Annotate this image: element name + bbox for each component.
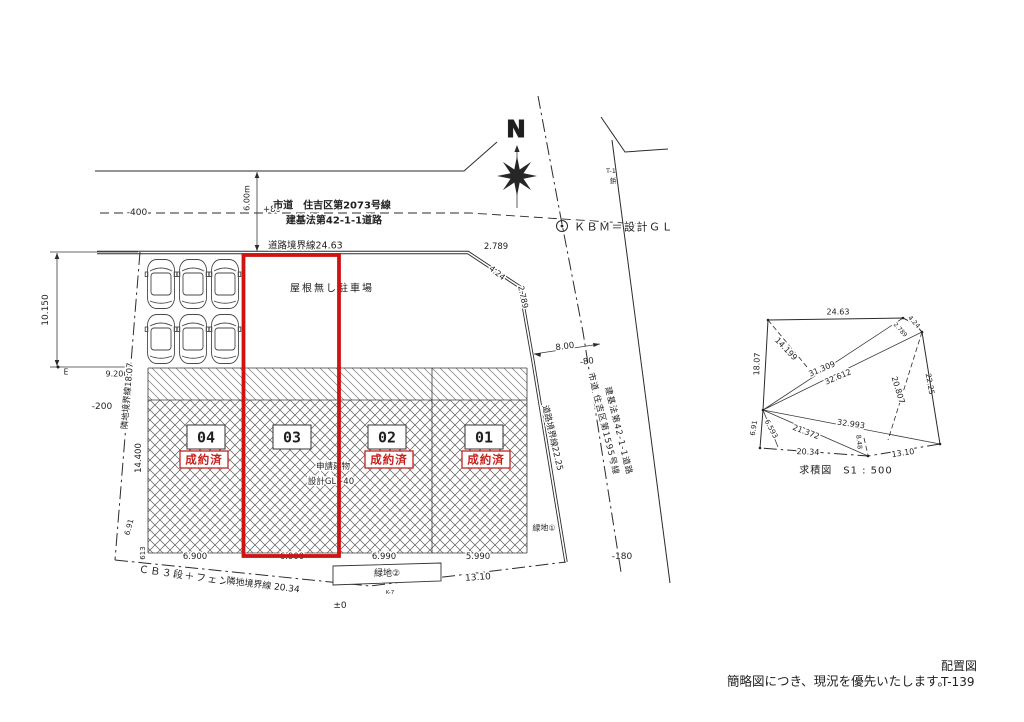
drawing-canvas: N ＫＢＭ＝設計ＧＬ T-1 鋲 屋根無し駐車場 [0, 0, 1024, 722]
west-edge-dim: 6.91 [122, 518, 135, 537]
survey-d5-dim: 21.372 [791, 423, 820, 441]
survey-d4-dim: 32.993 [837, 418, 866, 431]
top-road-name1: 市道 住吉区第2073号線 [273, 199, 391, 212]
lot-03-note-line2: 設計GL+40 [308, 476, 354, 487]
bend-dim-h: 2.789 [484, 242, 508, 252]
car-icon [209, 260, 241, 309]
car-icon [145, 260, 177, 309]
car-icon [177, 260, 209, 309]
south-dim-label: 13.10 [465, 572, 492, 584]
k7-label: K-7 [386, 590, 395, 596]
survey-h1-dim: 14.199 [773, 336, 799, 362]
north-letter: N [506, 117, 525, 143]
survey-bottom-right-dim: 13.10 [891, 447, 915, 459]
top-boundary-label: 道路境界線24.63 [268, 240, 343, 252]
lot-01-width: 5.990 [466, 552, 490, 562]
top-road-name2: 建基法第42-1-1道路 [285, 214, 383, 227]
survey-jog1-dim: 2.789 [892, 321, 909, 339]
west-elev-label: -200 [92, 402, 113, 412]
lot-02-status: 成約済 [370, 453, 408, 467]
top-elev-left: -400 [127, 208, 148, 218]
survey-vertices [759, 317, 942, 458]
lot-04-status: 成約済 [185, 453, 223, 467]
survey-top-dim: 24.63 [827, 308, 850, 317]
corner-building-edge [601, 117, 668, 152]
bench-mark-label: E [64, 368, 69, 377]
survey-bottom-left-dim: 20.34 [796, 447, 819, 457]
sheet-number: T-139 [940, 675, 974, 689]
parking-depth-dim: 10.150 [41, 294, 51, 326]
car-icon [177, 315, 209, 364]
car-icon [209, 315, 241, 364]
east-elev-lower: -180 [612, 552, 633, 562]
title-block: 簡略図につき、現況を優先いたします。 配置図 T-139 [727, 659, 977, 689]
corner-offset-dim: 613 [139, 546, 147, 559]
car-icon [145, 315, 177, 364]
green2-label: 緑地② [374, 567, 400, 579]
survey-outline-solid [760, 318, 940, 448]
lot-03-number: 03 [283, 429, 301, 447]
lot-depth-dim: 14.400 [134, 443, 144, 473]
compass: N [497, 117, 537, 208]
site-plan-page: N ＫＢＭ＝設計ＧＬ T-1 鋲 屋根無し駐車場 [0, 0, 1024, 722]
survey-d6-dim: 6.593 [763, 418, 779, 439]
survey-right-dim: 22.25 [924, 373, 937, 396]
parking-label: 屋根無し駐車場 [290, 282, 374, 295]
survey-diagonals [763, 318, 940, 456]
lot-02-number: 02 [378, 429, 396, 447]
survey-title: 求積図 S1 : 500 [799, 464, 893, 477]
green1-label: 緑地① [532, 523, 555, 533]
bend-dim-diag: 4.24 [487, 264, 507, 282]
compass-needle-arrow [514, 145, 519, 152]
east-elev-upper: -80 [579, 356, 594, 368]
level-label: ±0 [333, 601, 347, 611]
benchmark: ＫＢＭ＝設計ＧＬ T-1 鋲 [557, 167, 675, 234]
survey-h2-dim: 8.48 [854, 434, 863, 449]
survey-left-lower-dim: 6.91 [749, 420, 760, 437]
survey-left-dim: 18.07 [752, 352, 762, 375]
pin-label: 鋲 [610, 176, 617, 185]
road-upper-edge [95, 142, 497, 171]
survey-diagram: 24.63 18.07 14.199 31.309 32.612 20.807 … [749, 308, 942, 477]
compass-star [497, 156, 537, 196]
kbm-symbol-dot [561, 225, 564, 228]
t1-label: T-1 [605, 167, 616, 175]
lot-01-status: 成約済 [467, 453, 505, 467]
east-road [534, 96, 670, 583]
lot-04-number: 04 [197, 429, 215, 447]
west-dim-lines [50, 252, 138, 367]
bend-dim-v: 2.789 [516, 285, 530, 309]
lot-03-note-line1: 申請建物 [316, 461, 351, 472]
lot-04-width: 6.900 [183, 552, 207, 562]
road-width-label: 6.00m [243, 185, 252, 211]
east-road-far-edge [612, 140, 670, 583]
east-dim-label: 8.00 [555, 341, 575, 354]
disclaimer-note: 簡略図につき、現況を優先いたします。 [727, 674, 950, 689]
lot-01-number: 01 [475, 429, 493, 447]
west-dimensions: 10.150 E 9.200 -200 隣地境界線18.07 14.400 61… [41, 252, 147, 560]
east-boundary-label: 道路境界線22.25 [540, 404, 566, 472]
lot-02-width: 6.990 [372, 552, 396, 562]
lot-area: 04 03 02 01 成約済 成約済 成約済 申請建物 設計GL+40 6.9… [148, 255, 527, 562]
survey-jog2-dim: 4.24 [906, 314, 922, 330]
sheet-title: 配置図 [941, 659, 977, 673]
bench-dot [57, 366, 60, 369]
